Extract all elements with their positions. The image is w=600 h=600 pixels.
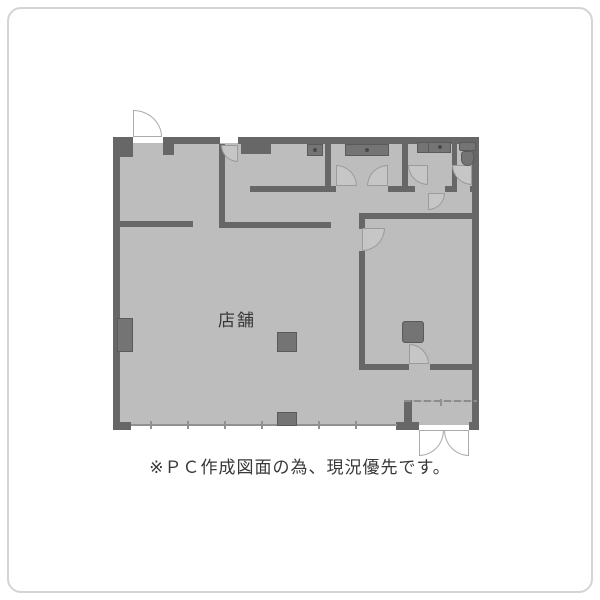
wall [359,364,409,370]
pillar [117,318,133,352]
wall-pier [117,144,133,157]
wall [113,422,131,430]
wall [359,213,365,229]
mullion-tick [187,421,189,429]
wall-pier [241,144,271,154]
wall [325,144,331,192]
pillar [277,332,297,352]
back-door-arc [133,110,162,137]
caption: ※ＰＣ作成図面の為、現況優先です。 [0,453,600,478]
mullion-tick [318,421,320,429]
slide-door-center-tick [440,399,442,406]
wall [359,213,479,219]
vanity-sink [417,142,451,153]
wall [163,137,220,144]
wall [219,222,331,228]
mullion-tick [355,421,357,429]
toilet-bowl-icon [461,151,474,166]
wall [388,186,415,192]
wall [430,364,479,370]
wall-pier [404,400,412,425]
vanity-divider [428,143,429,152]
wall [470,186,479,192]
mullion-tick [261,421,263,429]
sink-faucet-dot [365,148,369,152]
wall [117,221,193,227]
wall [219,144,225,228]
shop-room-label: 店舗 [218,306,256,331]
storefront-glass-line [131,424,397,426]
wall [359,251,365,370]
stove-burner-dot [313,148,317,152]
mullion-tick [150,421,152,429]
wall [250,186,336,192]
wall [469,422,479,430]
floor-plan: 店舗 [0,0,600,600]
vanity-faucet-dot [438,145,442,149]
pillar [402,321,424,343]
pillar [277,412,297,426]
toilet-tank-icon [459,142,476,151]
wall [402,141,408,186]
floor-plan-image: 店舗 ※ＰＣ作成図面の為、現況優先です。 [0,0,600,600]
wall-pier [163,144,174,155]
wall [113,137,120,430]
mullion-tick [224,421,226,429]
wall [472,137,479,430]
